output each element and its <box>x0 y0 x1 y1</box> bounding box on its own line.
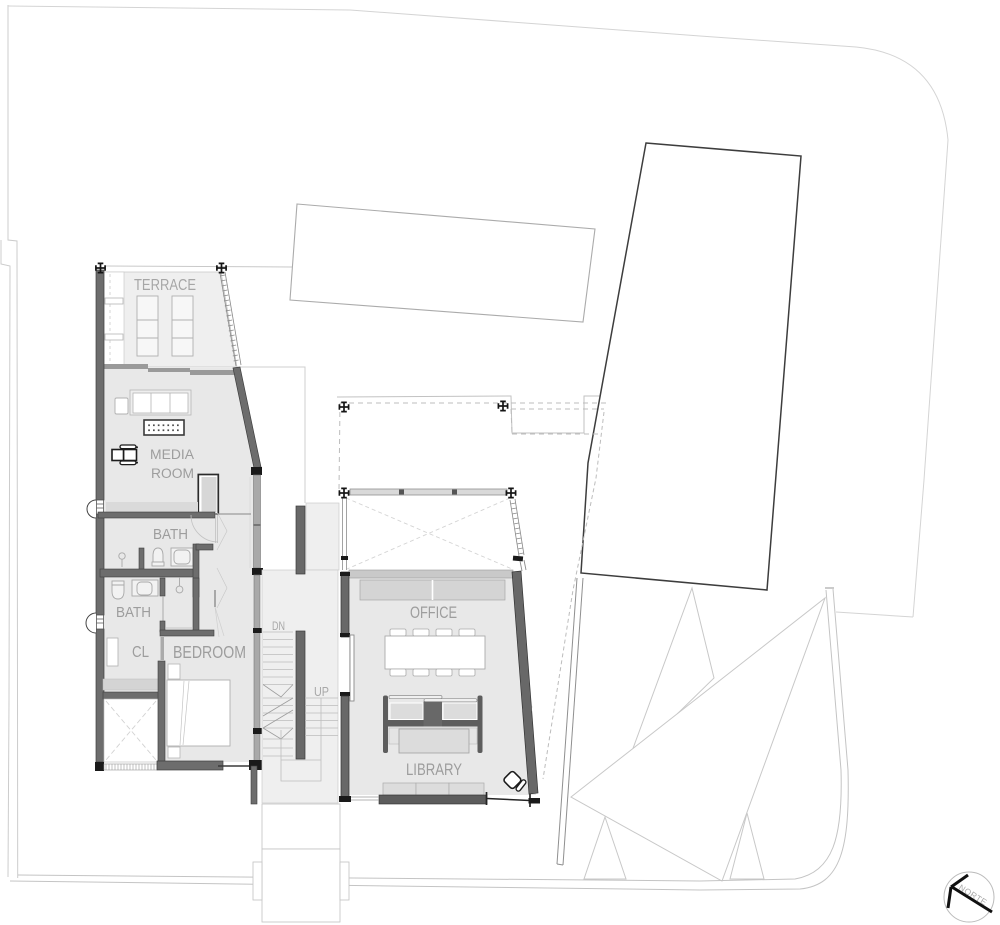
svg-text:BATH: BATH <box>116 604 151 621</box>
svg-text:LIBRARY: LIBRARY <box>406 761 462 779</box>
svg-text:ROOM: ROOM <box>151 466 194 481</box>
svg-text:CL: CL <box>132 644 149 661</box>
svg-text:BEDROOM: BEDROOM <box>173 642 246 662</box>
svg-text:DN: DN <box>272 619 285 633</box>
svg-text:UP: UP <box>314 684 329 699</box>
svg-text:TERRACE: TERRACE <box>134 277 196 294</box>
svg-text:MEDIA: MEDIA <box>150 447 194 462</box>
svg-text:OFFICE: OFFICE <box>410 604 457 622</box>
svg-text:BATH: BATH <box>153 526 188 543</box>
